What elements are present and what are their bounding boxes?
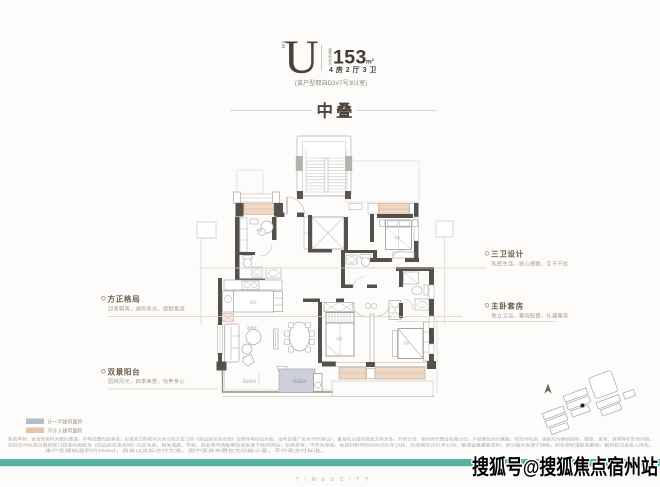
svg-text:家政阳台: 家政阳台: [293, 379, 307, 384]
svg-text:T I M E S C I T Y: T I M E S C I T Y: [296, 477, 371, 483]
svg-text:153: 153: [333, 47, 367, 69]
svg-text:双景阳台: 双景阳台: [108, 366, 141, 376]
svg-text:客餐厅: 客餐厅: [247, 325, 258, 330]
svg-text:三卫设计: 三卫设计: [491, 248, 524, 258]
svg-text:U: U: [284, 31, 319, 84]
svg-text:免责声明：本宣传资料为要约邀请，不构成要约或承诺，买卖双方的: 免责声明：本宣传资料为要约邀请，不构成要约或承诺，买卖双方的权利义务以双方签订的…: [8, 435, 654, 442]
svg-text:次卧: 次卧: [336, 336, 343, 341]
svg-text:主卧套房: 主卧套房: [491, 300, 524, 310]
svg-text:搜狐号@搜狐焦点宿州站: 搜狐号@搜狐焦点宿州站: [472, 455, 658, 479]
svg-text:私密生活，贴心细致，互不干扰: 私密生活，贴心细致，互不干扰: [492, 259, 569, 267]
svg-text:厨房: 厨房: [250, 300, 257, 305]
svg-text:本户型建筑面积约153㎡，具体以实际交付为准。图中家具布置仅: 本户型建筑面积约153㎡，具体以实际交付为准。图中家具布置仅为功能示意，不代表交…: [45, 447, 327, 454]
svg-text:次卧: 次卧: [394, 235, 401, 240]
svg-text:四室朝南，通风采光，视野宽阔: 四室朝南，通风采光，视野宽阔: [108, 305, 185, 313]
svg-text:方正格局: 方正格局: [108, 293, 141, 303]
svg-text:主卧: 主卧: [403, 340, 410, 345]
svg-text:中叠: 中叠: [317, 101, 356, 121]
svg-text:计一半建筑面积: 计一半建筑面积: [48, 418, 83, 425]
svg-text:4 房 2 厅 3 卫: 4 房 2 厅 3 卫: [329, 65, 377, 74]
svg-text:园林风光，四季美景，怡养身心: 园林风光，四季美景，怡养身心: [108, 377, 185, 385]
svg-text:不计入建筑面积: 不计入建筑面积: [48, 427, 83, 434]
svg-text:南景阳台: 南景阳台: [243, 379, 257, 384]
svg-text:(该户型取自D3#7号301室): (该户型取自D3#7号301室): [295, 79, 368, 87]
svg-text:书房: 书房: [256, 228, 263, 233]
svg-text:独立卫浴，奢阔配置，礼遇尊崇: 独立卫浴，奢阔配置，礼遇尊崇: [492, 311, 569, 319]
